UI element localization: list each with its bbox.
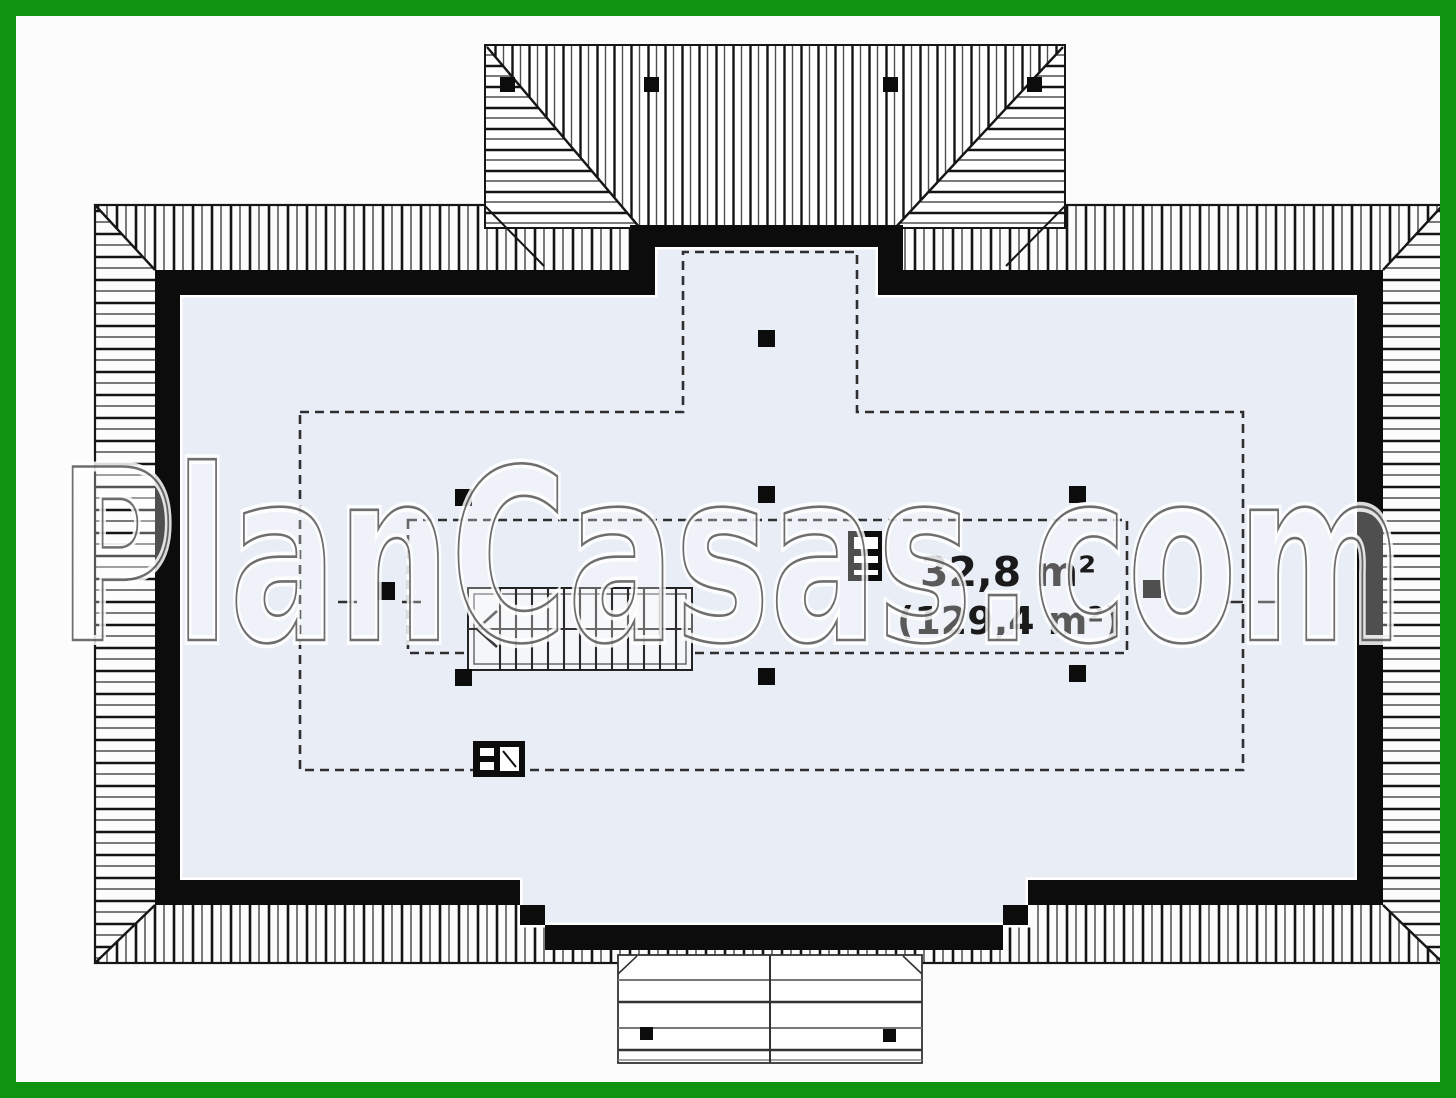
floor-plan-drawing: 32,8 m² (129,4 m²) PlanCasas.com PlanCas… [0,0,1456,1098]
roof-post-marker [1027,77,1042,92]
roof-post-marker [644,77,659,92]
terrace-deck [618,955,922,1063]
floor-plan-page: 32,8 m² (129,4 m²) PlanCasas.com PlanCas… [0,0,1456,1098]
watermark-text: PlanCasas.com [58,420,1403,697]
roof-post-marker [883,77,898,92]
watermark: PlanCasas.com PlanCasas.com [58,420,1403,697]
roof-post-marker [500,77,515,92]
terrace-post-marker [883,1029,896,1042]
interior-post-marker [758,330,775,347]
appliance-symbol [473,741,525,777]
terrace-post-marker [640,1027,653,1040]
